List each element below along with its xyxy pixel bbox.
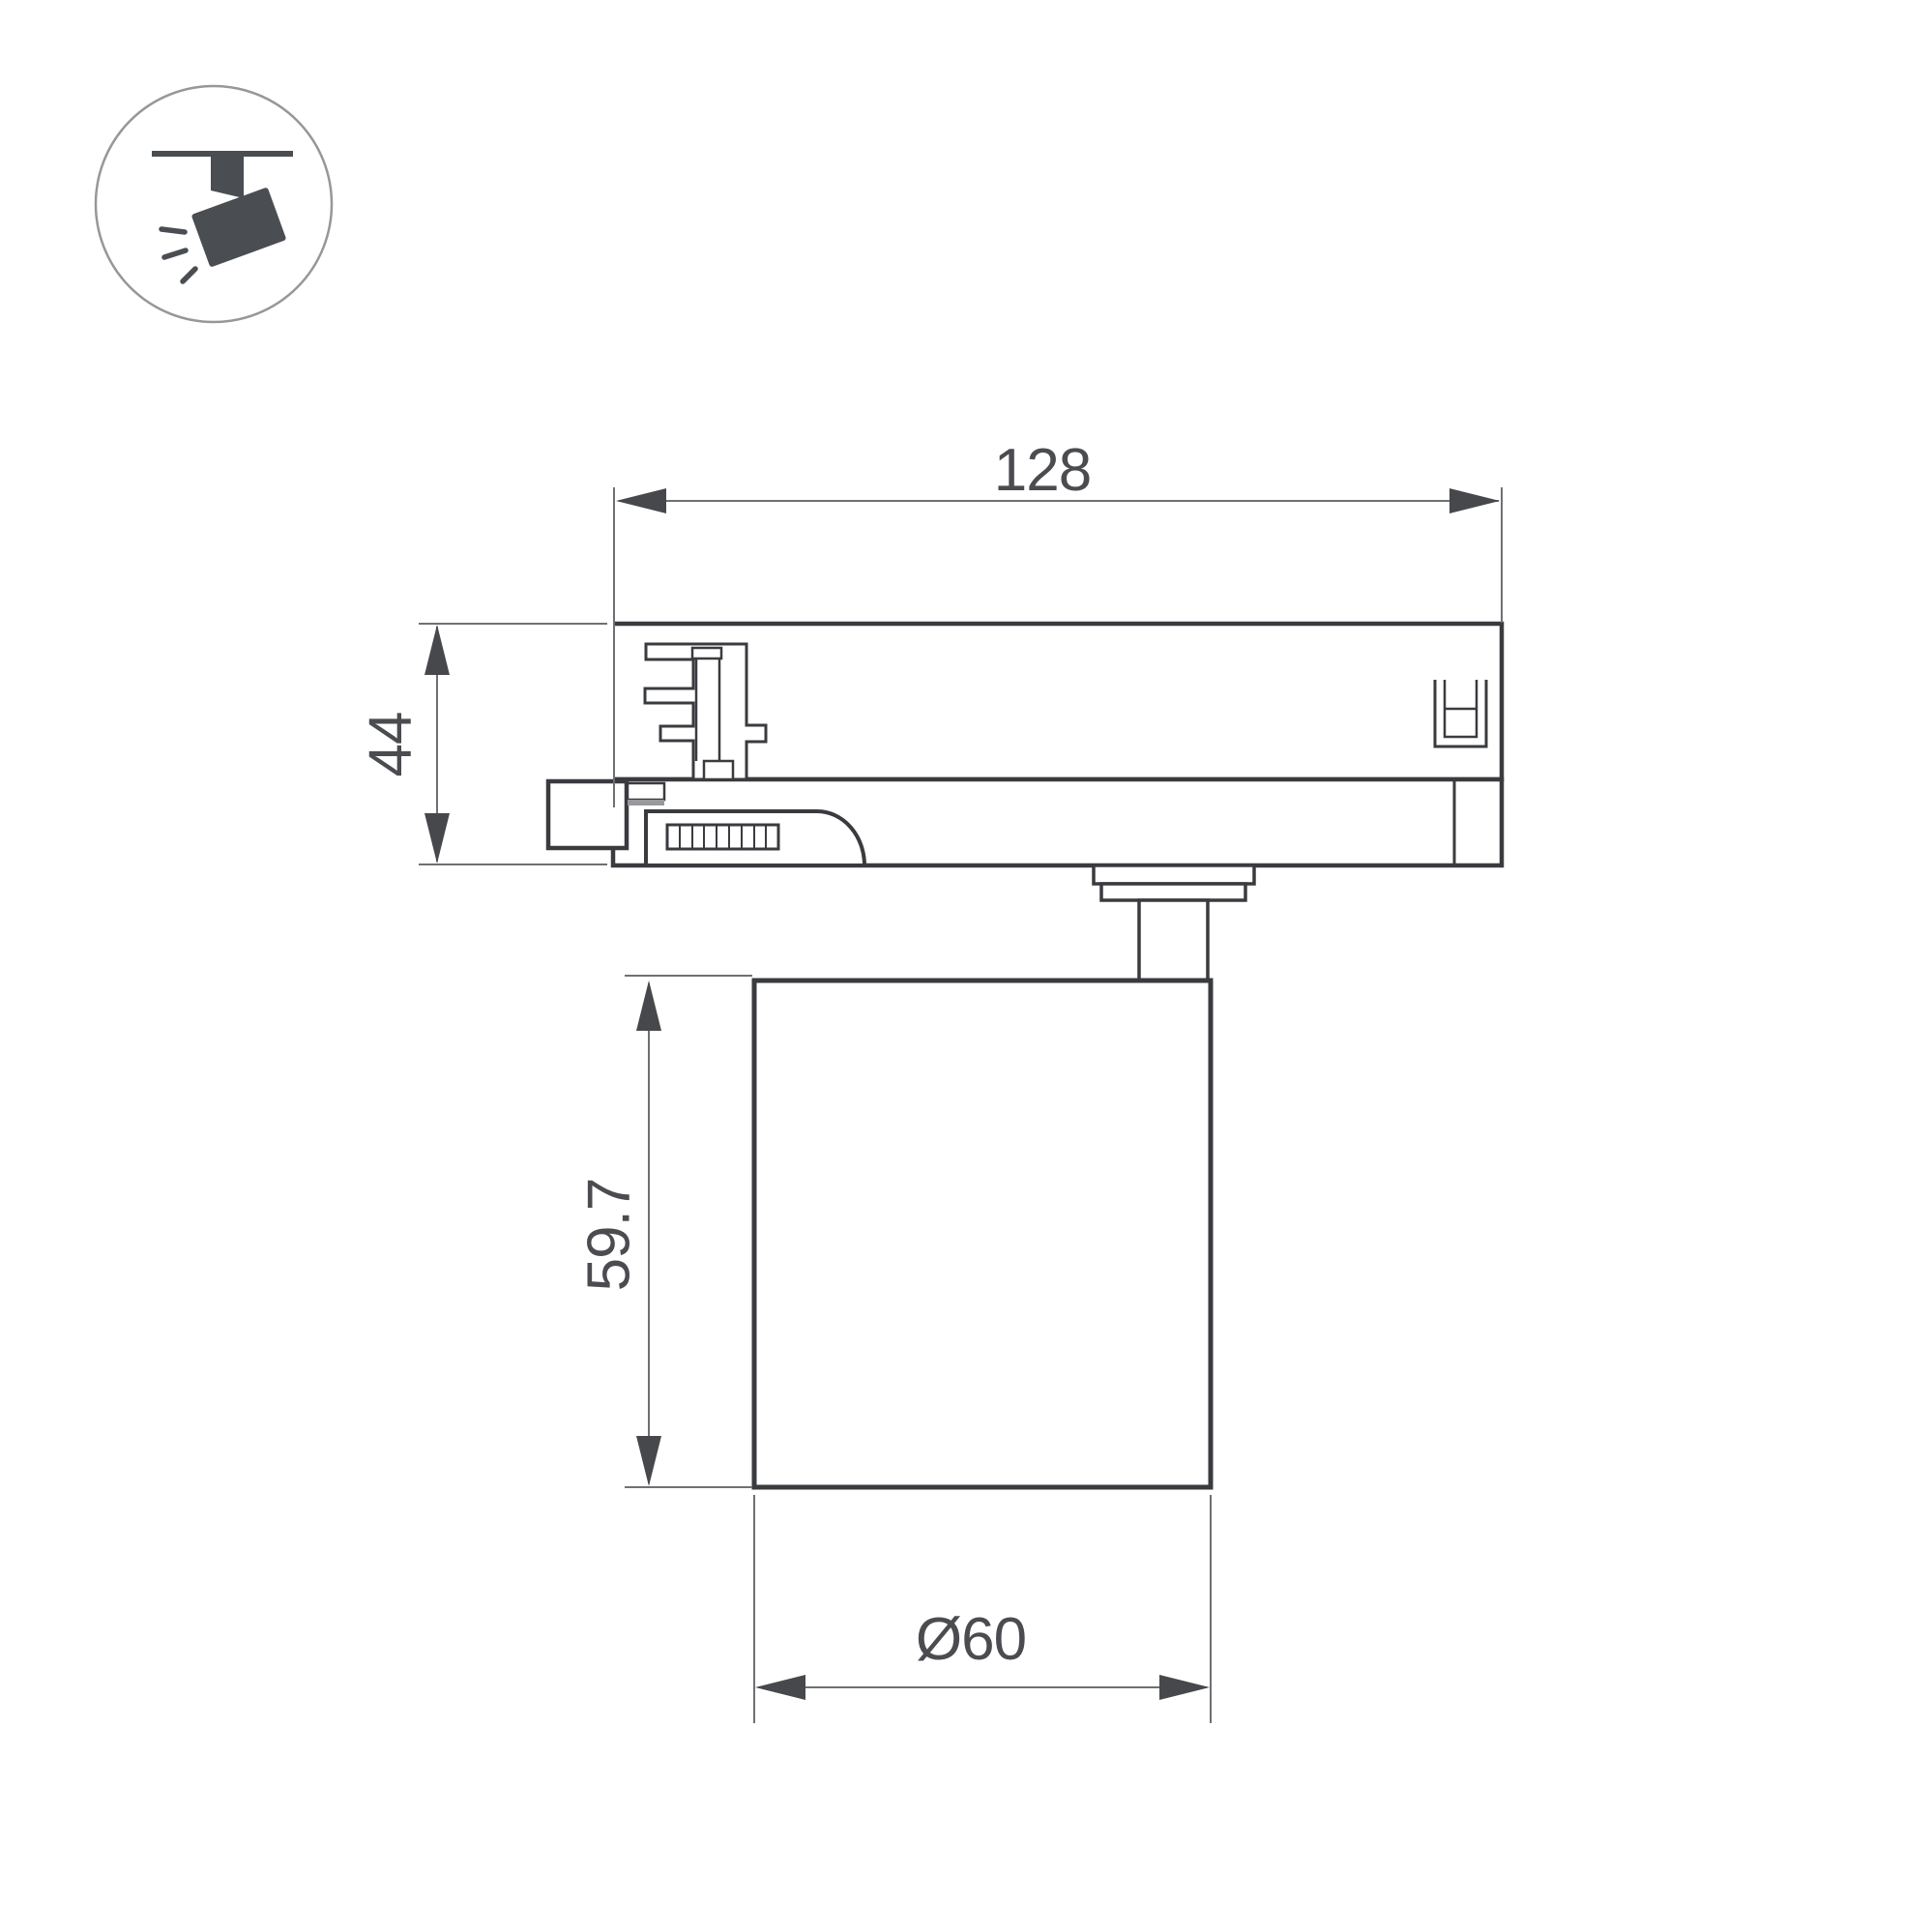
arrowhead-up bbox=[424, 625, 450, 675]
contact-pin-cap bbox=[692, 648, 721, 659]
hub-step-upper bbox=[1094, 865, 1254, 884]
arrowhead-right bbox=[1449, 488, 1500, 513]
dimension-lamp-diameter: Ø60 bbox=[754, 1495, 1211, 1723]
arrowhead-down bbox=[636, 1436, 661, 1486]
lamp-cylinder bbox=[754, 981, 1211, 1487]
contact-pin-foot bbox=[704, 761, 733, 779]
lock-lever-slot bbox=[628, 783, 664, 800]
arrowhead-down bbox=[424, 813, 450, 864]
arrowhead-left bbox=[755, 1675, 805, 1700]
track-spotlight-icon bbox=[96, 86, 332, 322]
hub-step-lower bbox=[1101, 884, 1245, 900]
arrowhead-up bbox=[636, 981, 661, 1031]
u-channel-detail bbox=[1435, 680, 1486, 746]
drawing-canvas: 128 44 59.7 Ø60 bbox=[0, 0, 1932, 1932]
arrowhead-left bbox=[616, 488, 666, 513]
dimension-width-label: 128 bbox=[994, 437, 1091, 504]
technical-drawing-svg: 128 44 59.7 Ø60 bbox=[0, 0, 1932, 1932]
dimension-lamp-height-label: 59.7 bbox=[576, 1179, 643, 1292]
dimension-adapter-height-label: 44 bbox=[358, 713, 424, 777]
dimension-lamp-height: 59.7 bbox=[576, 976, 753, 1487]
lock-lever-slot-shadow bbox=[628, 800, 664, 805]
ribbed-grip bbox=[667, 825, 778, 849]
icon-circle-badge bbox=[96, 86, 332, 322]
dimension-lamp-diameter-label: Ø60 bbox=[916, 1606, 1026, 1673]
arrowhead-right bbox=[1159, 1675, 1210, 1700]
mount-stem bbox=[1139, 900, 1208, 981]
swivel-hub bbox=[1094, 865, 1254, 981]
